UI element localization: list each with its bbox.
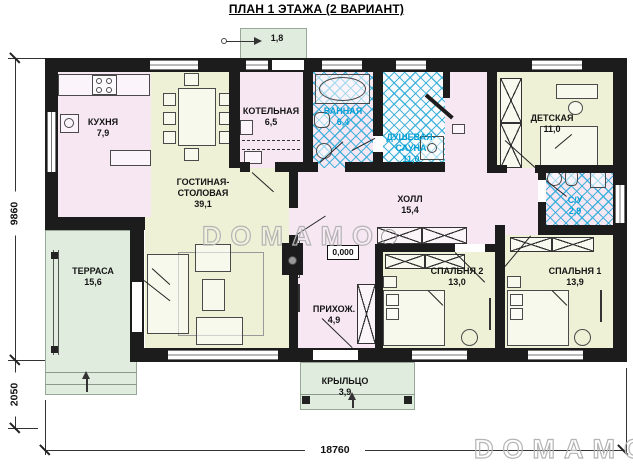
room-label-bathroom: ВАННАЯ 6,4 xyxy=(313,106,373,128)
room-area: 39,1 xyxy=(160,199,246,210)
room-label-entry: ПРИХОЖ. 4,9 xyxy=(303,304,365,326)
room-name: СПАЛЬНЯ 1 xyxy=(538,266,612,277)
room-area: 4,9 xyxy=(303,315,365,326)
porch-post xyxy=(302,396,310,404)
dining-chair xyxy=(184,148,199,161)
room-name: ВАННАЯ xyxy=(313,106,373,117)
mirror-bedroom2 xyxy=(489,298,491,330)
room-area: 15,6 xyxy=(60,277,126,288)
window-bathroom xyxy=(322,60,362,70)
dim-ext-line xyxy=(45,400,46,455)
room-name: ДУШЕВАЯ-САУНА xyxy=(380,132,442,154)
coffee-table xyxy=(202,279,225,311)
wall-bedroom2-bedroom1 xyxy=(495,244,505,348)
room-name: КУХНЯ xyxy=(70,117,136,128)
terrace-step-line xyxy=(45,384,137,385)
room-name: ДЕТСКАЯ xyxy=(517,113,587,124)
kitchen-counter-lower xyxy=(110,150,151,166)
wall-hall-bedroom1-stub xyxy=(495,225,505,244)
room-label-kids: ДЕТСКАЯ 11,0 xyxy=(517,113,587,135)
dining-chair xyxy=(163,131,176,144)
wall-wc-left-stub xyxy=(538,168,546,180)
room-name: КРЫЛЬЦО xyxy=(315,376,375,387)
door-terrace xyxy=(132,282,142,332)
door-rear-porch xyxy=(272,60,304,70)
sofa xyxy=(147,254,189,334)
room-label-kitchen: КУХНЯ 7,9 xyxy=(70,117,136,139)
room-name: СПАЛЬНЯ 2 xyxy=(420,266,494,277)
wall-hall-top-seg xyxy=(345,162,383,172)
wall-wc-bottom xyxy=(538,225,613,235)
dining-chair xyxy=(184,73,199,86)
room-area: 7,9 xyxy=(70,128,136,139)
dim-ext-line xyxy=(8,428,38,429)
tv-panel xyxy=(298,284,300,312)
stove-burner-icon xyxy=(106,78,112,84)
wall-hall-bedroom2-seg xyxy=(485,244,495,252)
fireplace-flue-icon xyxy=(288,256,297,265)
door-front xyxy=(313,350,358,360)
room-label-hall: ХОЛЛ 15,4 xyxy=(380,194,440,216)
terrace-railing xyxy=(53,250,59,355)
terrace-entry-arrow-stem xyxy=(86,378,88,392)
watermark-bottom-right: DOMAMO xyxy=(474,434,633,465)
wardrobe-bedroom1 xyxy=(510,237,552,252)
room-name: С/У xyxy=(550,195,600,206)
wall-hall-top-seg xyxy=(240,162,250,172)
window-dining xyxy=(150,60,198,70)
dim-label-left-main: 9860 xyxy=(9,192,22,236)
room-area: 6,4 xyxy=(313,117,373,128)
room-area: 11,0 xyxy=(517,124,587,135)
room-label-bedroom1: СПАЛЬНЯ 1 13,9 xyxy=(538,266,612,288)
stove-burner-icon xyxy=(96,87,102,93)
room-label-terrace: ТЕРРАСА 15,6 xyxy=(60,266,126,288)
wall-sauna-kids xyxy=(487,72,497,173)
wardrobe-bedroom1 xyxy=(552,237,594,252)
stove-burner-icon xyxy=(106,87,112,93)
rear-porch-arrow-stem xyxy=(226,41,256,42)
window-shower xyxy=(396,60,426,70)
wall-boiler-bath xyxy=(303,72,313,168)
stove xyxy=(92,75,117,95)
room-label-boiler: КОТЕЛЬНАЯ 6,5 xyxy=(239,106,303,128)
watermark-center: DOMAMO xyxy=(202,221,382,252)
window-bedroom2 xyxy=(412,350,467,360)
window-living xyxy=(168,350,278,360)
window-kitchen xyxy=(47,112,56,172)
porch-entry-arrow-stem xyxy=(352,398,354,408)
dim-label-bottom-total: 18760 xyxy=(305,444,365,457)
wall-wc-left-stub xyxy=(538,202,546,225)
room-area: 11,0 xyxy=(380,154,442,165)
room-name: ХОЛЛ xyxy=(380,194,440,205)
wall-hall-bedroom2-seg xyxy=(383,244,455,252)
dining-chair xyxy=(163,112,176,125)
nightstand xyxy=(507,276,521,288)
room-name: КОТЕЛЬНАЯ xyxy=(239,106,303,117)
pillow xyxy=(386,308,399,320)
dining-table xyxy=(178,88,216,146)
attic-ladder xyxy=(242,140,300,150)
terrace-step-line xyxy=(45,372,137,373)
room-area: 3,9 xyxy=(315,387,375,398)
desk-kids xyxy=(556,84,598,99)
room-label-bedroom2: СПАЛЬНЯ 2 13,0 xyxy=(420,266,494,288)
wall-bath-sauna xyxy=(373,72,383,136)
rear-porch-area-label: 1,8 xyxy=(262,33,292,44)
wall-entry-bedroom2 xyxy=(375,244,383,348)
bathtub-basin-icon xyxy=(319,77,366,101)
room-label-sauna: ДУШЕВАЯ-САУНА 11,0 xyxy=(380,132,442,164)
sauna-heater xyxy=(452,124,465,134)
window-wc xyxy=(615,185,625,223)
washing-machine xyxy=(590,171,606,188)
dining-chair xyxy=(163,93,176,106)
wall-kids-bottom-seg xyxy=(497,165,507,173)
dresser-stool-icon xyxy=(461,329,478,346)
wardrobe-hall xyxy=(422,227,467,244)
room-name: ПРИХОЖ. xyxy=(303,304,365,315)
pillow xyxy=(510,294,523,306)
nightstand xyxy=(383,276,397,288)
room-label-porch: КРЫЛЬЦО 3,9 xyxy=(315,376,375,398)
room-name: ГОСТИНАЯ-СТОЛОВАЯ xyxy=(160,177,246,199)
pillow xyxy=(510,308,523,320)
wall-living-hall xyxy=(289,168,298,208)
terrace-post xyxy=(51,346,58,353)
mirror-bedroom1 xyxy=(600,290,602,322)
room-area: 13,0 xyxy=(420,277,494,288)
window-bedroom1 xyxy=(528,350,583,360)
terrace-post xyxy=(51,252,58,259)
room-name: ТЕРРАСА xyxy=(60,266,126,277)
window-kids xyxy=(532,60,582,70)
plan-title: ПЛАН 1 ЭТАЖА (2 ВАРИАНТ) xyxy=(0,2,633,16)
dim-label-left-lower: 2050 xyxy=(9,373,22,417)
loveseat xyxy=(196,317,243,345)
wall-sauna-cabin-stub xyxy=(443,72,450,98)
wardrobe-bedroom2 xyxy=(385,254,425,269)
room-label-wc: С/У 2,9 xyxy=(550,195,600,217)
stove-burner-icon xyxy=(96,78,102,84)
porch-post xyxy=(404,396,412,404)
room-area: 2,9 xyxy=(550,206,600,217)
room-label-living: ГОСТИНАЯ-СТОЛОВАЯ 39,1 xyxy=(160,177,246,209)
wall-kids-bottom-seg xyxy=(535,165,613,173)
room-area: 15,4 xyxy=(380,205,440,216)
window-boiler xyxy=(246,60,268,70)
pillow xyxy=(386,294,399,306)
room-area: 13,9 xyxy=(538,277,612,288)
dresser-stool-icon xyxy=(574,329,591,346)
room-area: 6,5 xyxy=(239,117,303,128)
hall-mirror-icon xyxy=(381,229,397,245)
floor-plan-canvas: ПЛАН 1 ЭТАЖА (2 ВАРИАНТ) 1,8 xyxy=(0,0,633,470)
